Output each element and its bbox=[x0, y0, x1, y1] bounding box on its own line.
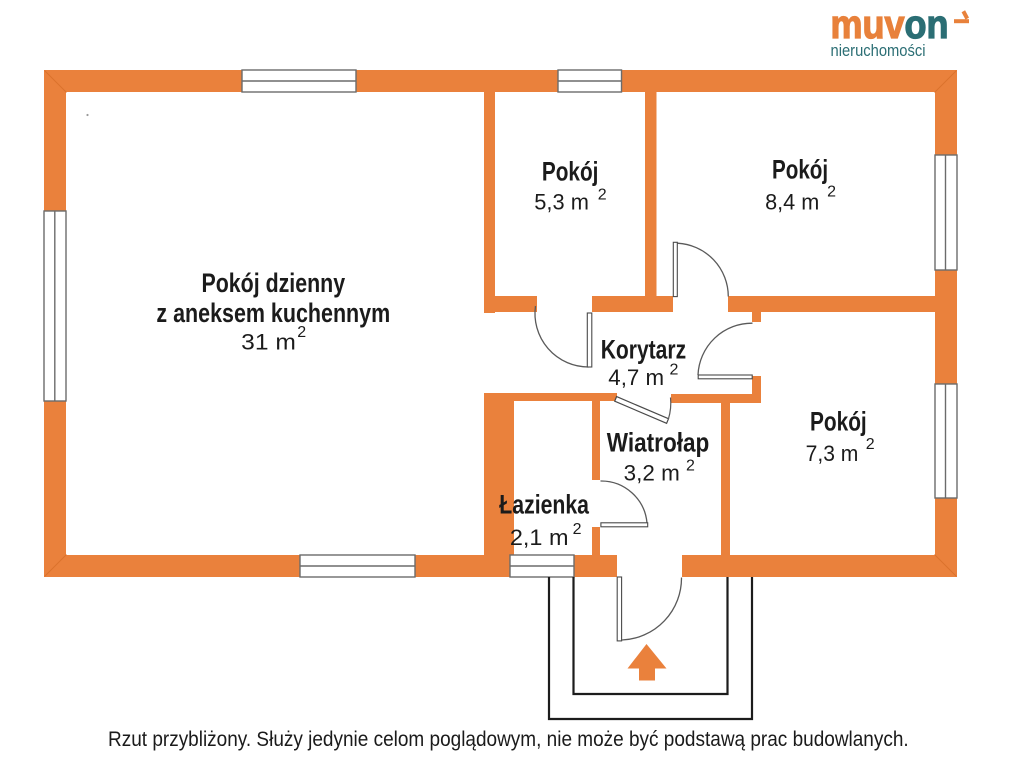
svg-text:Korytarz: Korytarz bbox=[601, 334, 686, 364]
svg-text:Pokój: Pokój bbox=[542, 157, 599, 187]
svg-text:Łazienka: Łazienka bbox=[499, 490, 589, 520]
svg-text:2: 2 bbox=[686, 458, 695, 475]
svg-text:Rzut przybliżony. Służy jedyni: Rzut przybliżony. Służy jedynie celom po… bbox=[108, 728, 909, 751]
svg-text:5,3 m: 5,3 m bbox=[534, 189, 589, 214]
svg-text:z aneksem kuchennym: z aneksem kuchennym bbox=[156, 298, 390, 328]
svg-text:2,1 m: 2,1 m bbox=[510, 525, 569, 550]
svg-text:Pokój dzienny: Pokój dzienny bbox=[202, 268, 346, 298]
svg-text:8,4 m: 8,4 m bbox=[765, 189, 819, 214]
svg-text:2: 2 bbox=[598, 187, 607, 204]
svg-text:2: 2 bbox=[827, 183, 836, 200]
svg-text:31 m: 31 m bbox=[241, 329, 296, 354]
svg-text:Pokój: Pokój bbox=[810, 406, 867, 436]
svg-text:2: 2 bbox=[297, 324, 306, 341]
svg-text:2: 2 bbox=[573, 521, 582, 538]
svg-text:4,7 m: 4,7 m bbox=[608, 365, 664, 390]
svg-text:Pokój: Pokój bbox=[772, 155, 828, 185]
svg-text:nieruchomości: nieruchomości bbox=[831, 41, 926, 60]
svg-text:Wiatrołap: Wiatrołap bbox=[607, 427, 710, 457]
svg-text:2: 2 bbox=[866, 436, 875, 453]
svg-text:2: 2 bbox=[670, 361, 679, 378]
svg-text:3,2 m: 3,2 m bbox=[624, 461, 680, 486]
svg-text:7,3 m: 7,3 m bbox=[806, 441, 859, 466]
